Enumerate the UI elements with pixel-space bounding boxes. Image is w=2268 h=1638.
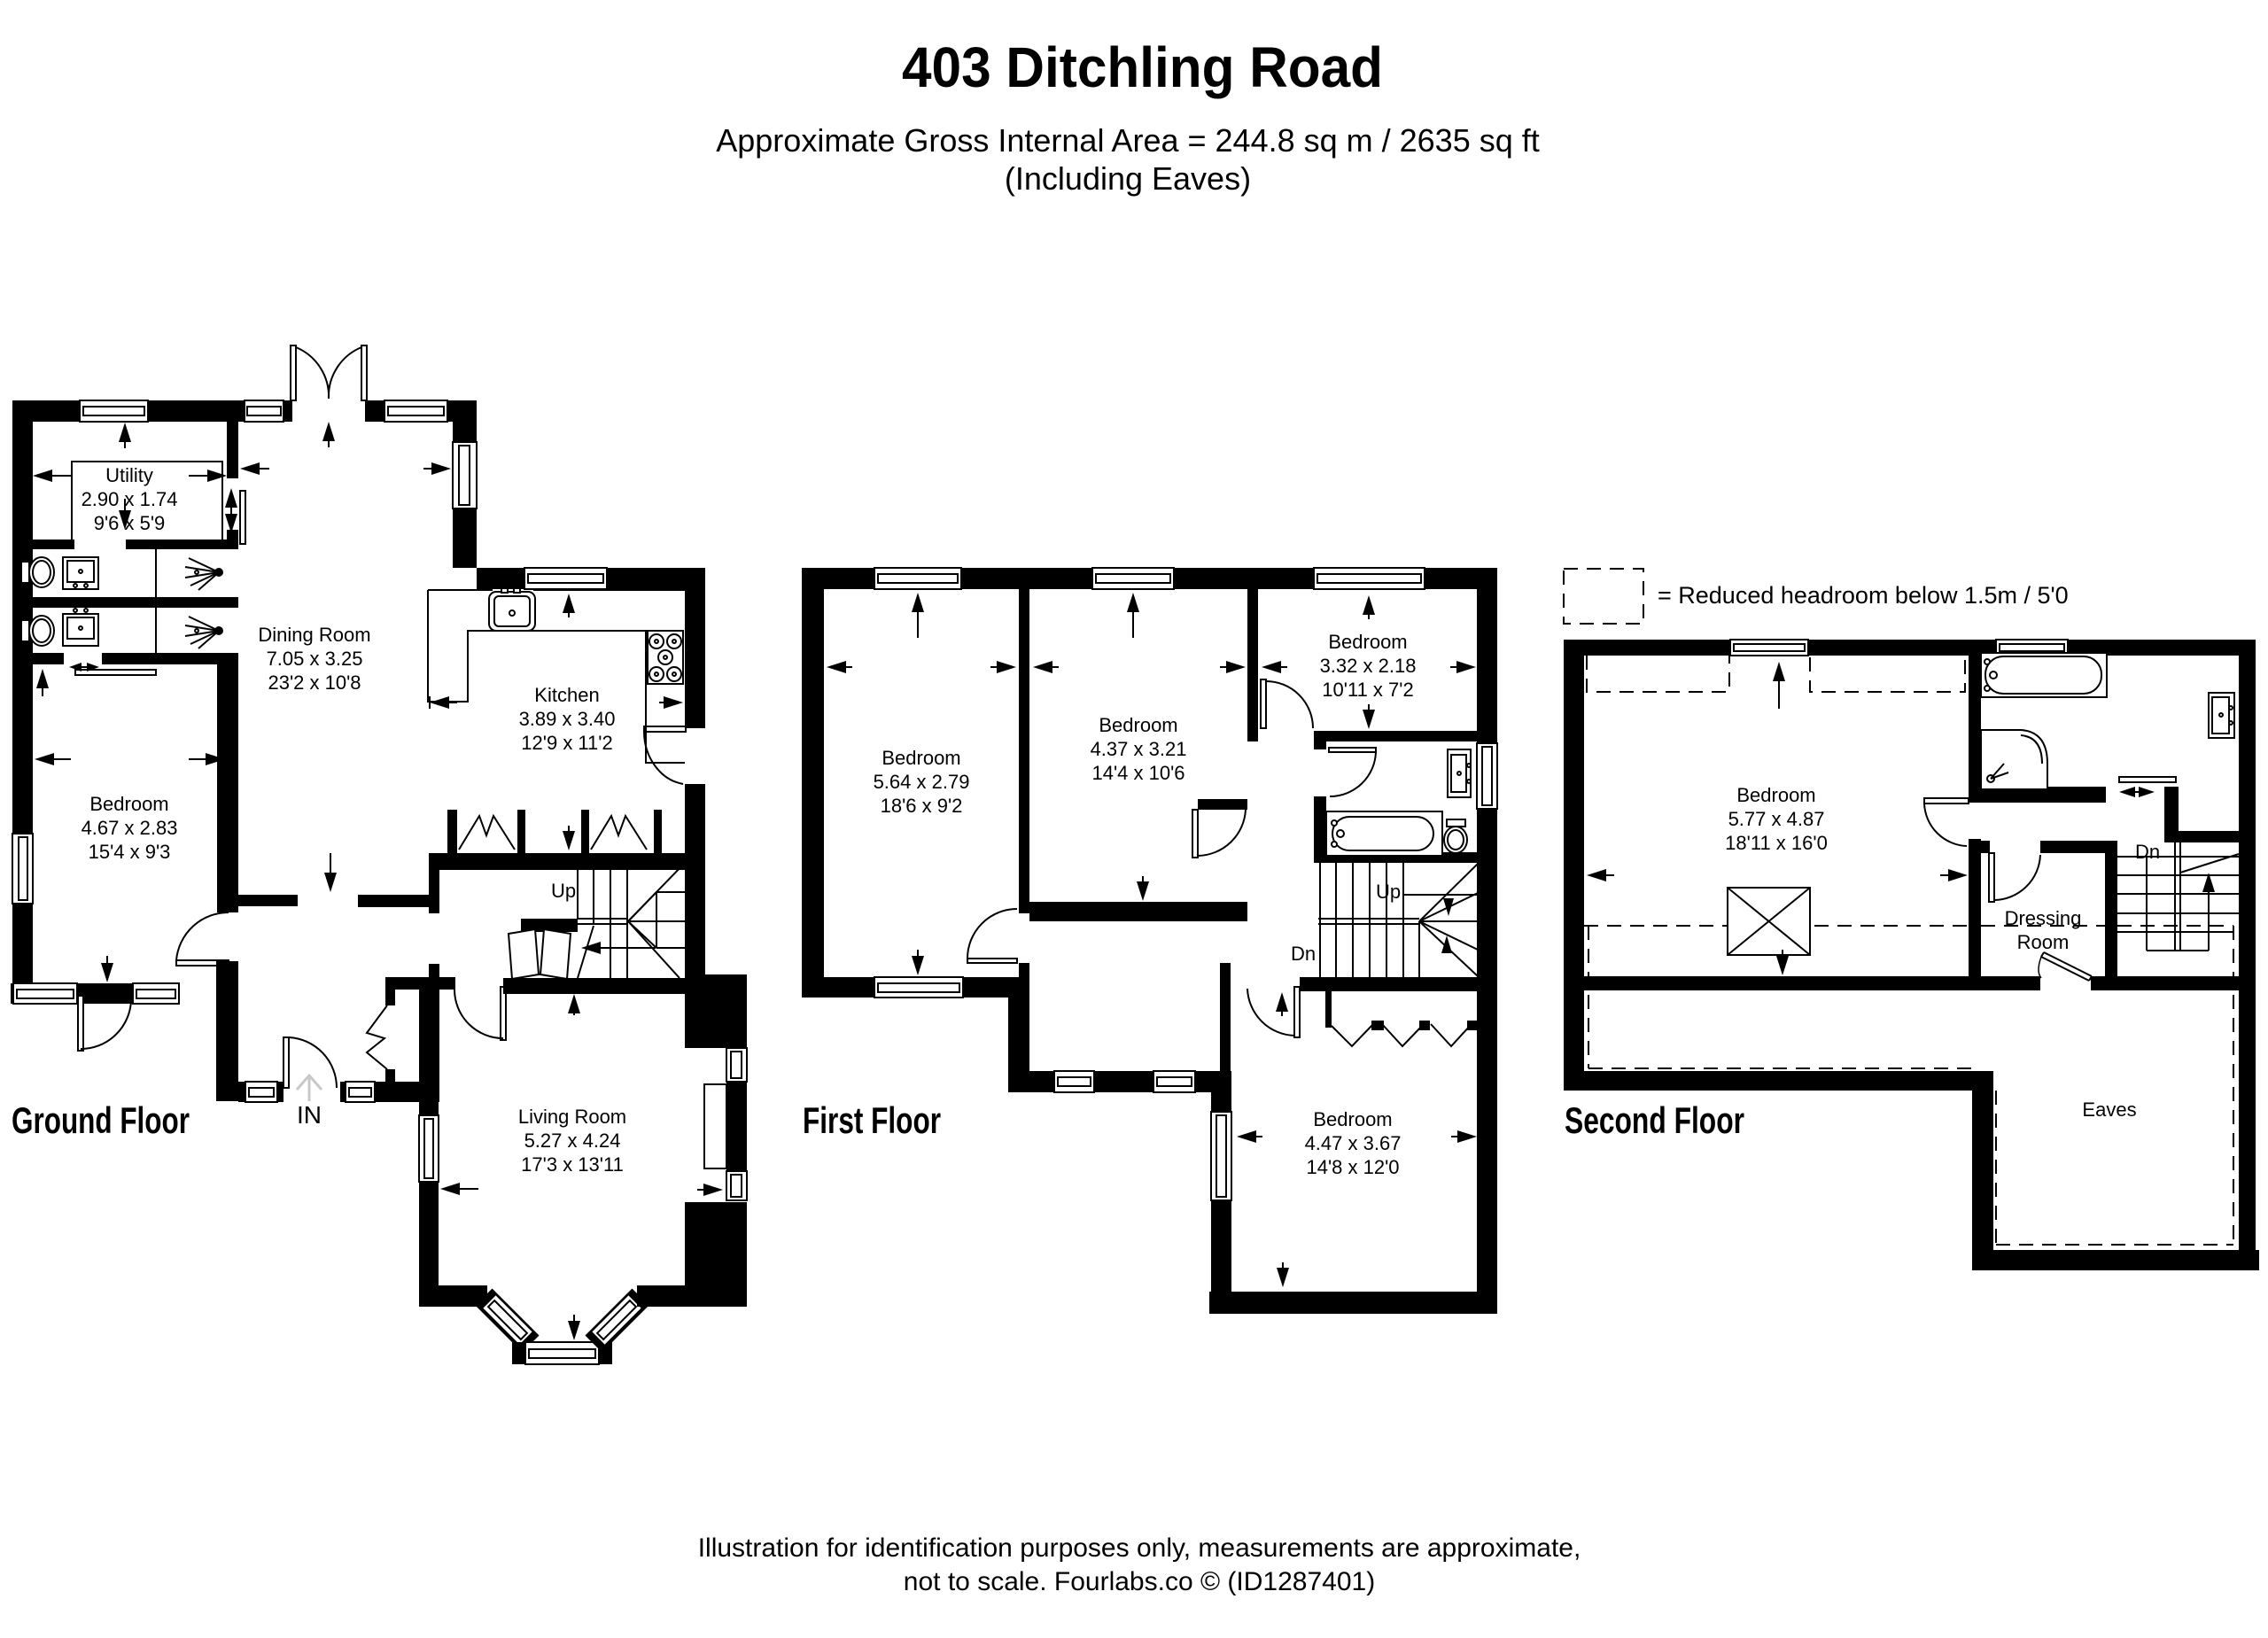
svg-text:Dn: Dn [1291,943,1316,965]
svg-text:18'11 x 16'0: 18'11 x 16'0 [1725,832,1828,854]
svg-text:Bedroom: Bedroom [1736,784,1815,806]
svg-text:15'4 x 9'3: 15'4 x 9'3 [89,841,171,863]
svg-text:5.27 x 4.24: 5.27 x 4.24 [524,1130,621,1152]
svg-text:not to scale. Fourlabs.co © (I: not to scale. Fourlabs.co © (ID1287401) [904,1567,1375,1596]
svg-text:17'3 x 13'11: 17'3 x 13'11 [521,1153,624,1176]
svg-text:Dining Room: Dining Room [258,624,370,646]
svg-text:7.05 x 3.25: 7.05 x 3.25 [267,648,363,670]
svg-text:403 Ditchling Road: 403 Ditchling Road [902,35,1383,99]
svg-text:Second Floor: Second Floor [1565,1099,1744,1141]
svg-text:14'8 x 12'0: 14'8 x 12'0 [1306,1156,1399,1178]
svg-text:Ground Floor: Ground Floor [12,1099,190,1141]
svg-text:Illustration for identificatio: Illustration for identification purposes… [698,1533,1581,1563]
svg-text:18'6 x 9'2: 18'6 x 9'2 [881,795,963,817]
svg-text:3.32 x 2.18: 3.32 x 2.18 [1320,655,1417,677]
svg-text:10'11 x 7'2: 10'11 x 7'2 [1322,679,1413,701]
svg-text:3.89 x 3.40: 3.89 x 3.40 [519,708,616,730]
svg-text:Eaves: Eaves [2082,1098,2136,1121]
svg-text:14'4 x 10'6: 14'4 x 10'6 [1091,762,1184,784]
svg-text:4.67 x 2.83: 4.67 x 2.83 [82,817,178,839]
svg-text:Room: Room [2017,931,2070,953]
svg-text:5.77 x 4.87: 5.77 x 4.87 [1728,808,1825,830]
svg-text:First Floor: First Floor [803,1099,941,1141]
svg-text:Bedroom: Bedroom [1313,1108,1392,1130]
svg-text:Bedroom: Bedroom [882,747,960,769]
svg-text:Living Room: Living Room [518,1106,626,1128]
svg-text:Approximate Gross Internal Are: Approximate Gross Internal Area = 244.8 … [716,122,1540,159]
svg-text:23'2 x 10'8: 23'2 x 10'8 [268,672,361,694]
svg-text:4.37 x 3.21: 4.37 x 3.21 [1091,738,1187,760]
svg-text:Bedroom: Bedroom [1099,714,1177,736]
svg-text:5.64 x 2.79: 5.64 x 2.79 [874,771,970,793]
svg-text:Kitchen: Kitchen [534,684,599,706]
svg-text:Utility: Utility [105,464,153,486]
svg-text:IN: IN [297,1101,322,1129]
svg-text:= Reduced headroom below 1.5m: = Reduced headroom below 1.5m / 5'0 [1658,582,2069,609]
svg-text:Bedroom: Bedroom [89,793,168,815]
svg-text:Up: Up [551,880,576,902]
svg-text:4.47 x 3.67: 4.47 x 3.67 [1305,1132,1402,1154]
svg-text:(Including Eaves): (Including Eaves) [1005,160,1251,197]
svg-text:2.90 x 1.74: 2.90 x 1.74 [82,488,178,510]
svg-text:Bedroom: Bedroom [1328,631,1407,653]
svg-text:12'9 x 11'2: 12'9 x 11'2 [521,732,612,754]
svg-text:Up: Up [1376,881,1401,903]
